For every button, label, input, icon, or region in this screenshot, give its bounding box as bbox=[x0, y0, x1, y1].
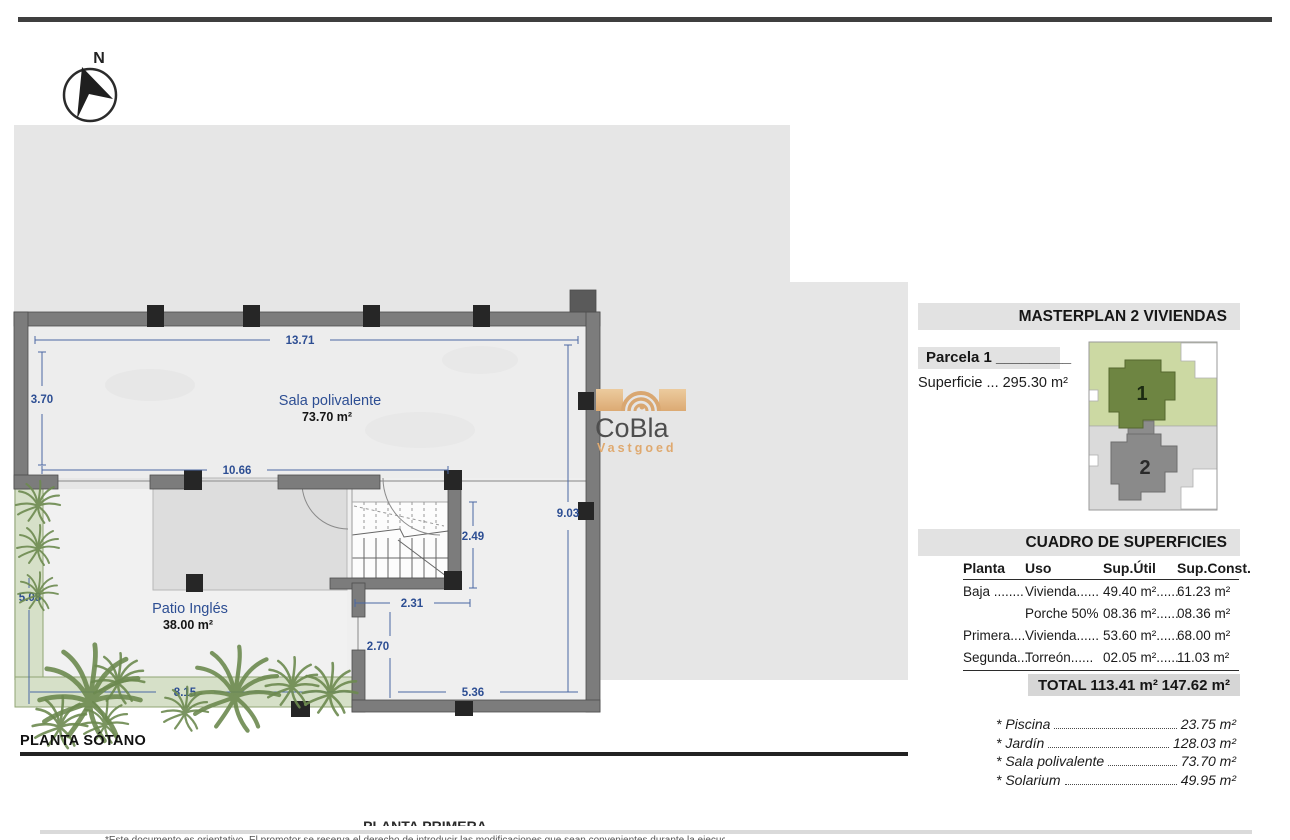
table-cell: Baja ........ bbox=[963, 581, 1025, 603]
unit1-label: 1 bbox=[1136, 383, 1147, 405]
table-cell: 02.05 m²...... bbox=[1103, 647, 1177, 669]
table-rule-bottom bbox=[963, 670, 1239, 671]
clipped-next-heading: PLANTA PRIMERA bbox=[330, 819, 520, 826]
table-cell: Torreón...... bbox=[1025, 647, 1103, 669]
list-item: * Sala polivalente 73.70 m² bbox=[996, 753, 1236, 772]
dim-inner: 10.66 bbox=[223, 465, 252, 477]
table-cell bbox=[963, 603, 1025, 625]
floor-plan: 13.71 3.70 10.66 9.03 2.49 2.31 2.70 5.3… bbox=[0, 0, 1290, 840]
page-title: PLANTA SÓTANO bbox=[20, 733, 146, 749]
table-cell: 49.40 m²...... bbox=[1103, 581, 1177, 603]
table-cell: 68.00 m² bbox=[1177, 625, 1239, 647]
dim-room: 5.36 bbox=[462, 687, 484, 699]
table-cell: Segunda... bbox=[963, 647, 1025, 669]
extra-value: 73.70 m² bbox=[1181, 753, 1236, 769]
dim-core: 2.31 bbox=[401, 598, 424, 610]
dim-top: 13.71 bbox=[286, 335, 315, 347]
total-const: 147.62 m² bbox=[1162, 677, 1230, 694]
unit2-label: 2 bbox=[1139, 457, 1150, 479]
bottom-gray-bar bbox=[40, 830, 1252, 834]
total-label: TOTAL bbox=[1038, 677, 1087, 694]
table-cell: 53.60 m²...... bbox=[1103, 625, 1177, 647]
room-patio-area: 38.00 m² bbox=[163, 618, 213, 632]
col-util: Sup.Útil bbox=[1103, 558, 1177, 578]
table-cell: Vivienda...... bbox=[1025, 581, 1103, 603]
table-cell: 08.36 m² bbox=[1177, 603, 1239, 625]
total-bar: TOTAL 113.41 m² 147.62 m² bbox=[1028, 674, 1240, 696]
surfaces-table: Planta Uso Sup.Útil Sup.Const. Baja ....… bbox=[963, 558, 1239, 672]
table-cell: Primera.... bbox=[963, 625, 1025, 647]
extra-value: 49.95 m² bbox=[1181, 772, 1236, 788]
dim-right: 9.03 bbox=[557, 508, 579, 520]
list-item: * Jardín 128.03 m² bbox=[996, 735, 1236, 754]
table-cell: 08.36 m²...... bbox=[1103, 603, 1177, 625]
parcel-label: Parcela 1 _________ bbox=[918, 347, 1060, 369]
masterplan-title: MASTERPLAN 2 VIVIENDAS bbox=[918, 303, 1240, 330]
masterplan-diagram: 1 2 bbox=[1089, 342, 1217, 510]
title-rule bbox=[20, 752, 908, 756]
extra-name: * Jardín bbox=[996, 735, 1044, 751]
room-sala-label: Sala polivalente bbox=[279, 393, 381, 409]
extra-value: 23.75 m² bbox=[1181, 716, 1236, 732]
dotted-leader bbox=[1065, 784, 1177, 785]
page: 13.71 3.70 10.66 9.03 2.49 2.31 2.70 5.3… bbox=[0, 0, 1290, 840]
dotted-leader bbox=[1054, 728, 1176, 729]
dim-stair: 2.49 bbox=[462, 531, 484, 543]
logo-block-left bbox=[596, 389, 623, 411]
clipped-disclaimer: *Este documento es orientativo. El promo… bbox=[105, 835, 725, 840]
room-sala-area: 73.70 m² bbox=[302, 410, 352, 424]
north-label: N bbox=[93, 50, 105, 67]
col-const: Sup.Const. bbox=[1177, 558, 1239, 578]
table-cell: 61.23 m² bbox=[1177, 581, 1239, 603]
dotted-leader bbox=[1048, 747, 1169, 748]
core-block bbox=[153, 478, 347, 590]
table-cell: Porche 50% bbox=[1025, 603, 1103, 625]
col-uso: Uso bbox=[1025, 558, 1103, 578]
logo-block-right bbox=[659, 389, 686, 411]
dotted-leader bbox=[1108, 765, 1177, 766]
north-arrow-icon: N bbox=[64, 50, 116, 121]
extra-name: * Solarium bbox=[996, 772, 1061, 788]
table-rule-top bbox=[963, 579, 1239, 580]
logo-brand: CoBla bbox=[595, 413, 670, 443]
list-item: * Solarium 49.95 m² bbox=[996, 772, 1236, 791]
col-planta: Planta bbox=[963, 558, 1025, 578]
list-item: * Piscina 23.75 m² bbox=[996, 716, 1236, 735]
table-cell: Vivienda...... bbox=[1025, 625, 1103, 647]
surfaces-title: CUADRO DE SUPERFICIES bbox=[918, 529, 1240, 556]
parcel-surface: Superficie ... 295.30 m² bbox=[918, 375, 1068, 391]
extra-name: * Piscina bbox=[996, 716, 1050, 732]
room-patio-label: Patio Inglés bbox=[152, 601, 228, 617]
dim-left: 3.70 bbox=[31, 394, 53, 406]
logo-sub: Vastgoed bbox=[597, 441, 677, 455]
extras-list: * Piscina 23.75 m² * Jardín 128.03 m² * … bbox=[996, 716, 1236, 790]
floors bbox=[15, 326, 586, 707]
extra-name: * Sala polivalente bbox=[996, 753, 1104, 769]
table-cell: 11.03 m² bbox=[1177, 647, 1239, 669]
total-util: 113.41 m² bbox=[1090, 677, 1158, 694]
dim-lower: 2.70 bbox=[367, 641, 389, 653]
extra-value: 128.03 m² bbox=[1173, 735, 1236, 751]
